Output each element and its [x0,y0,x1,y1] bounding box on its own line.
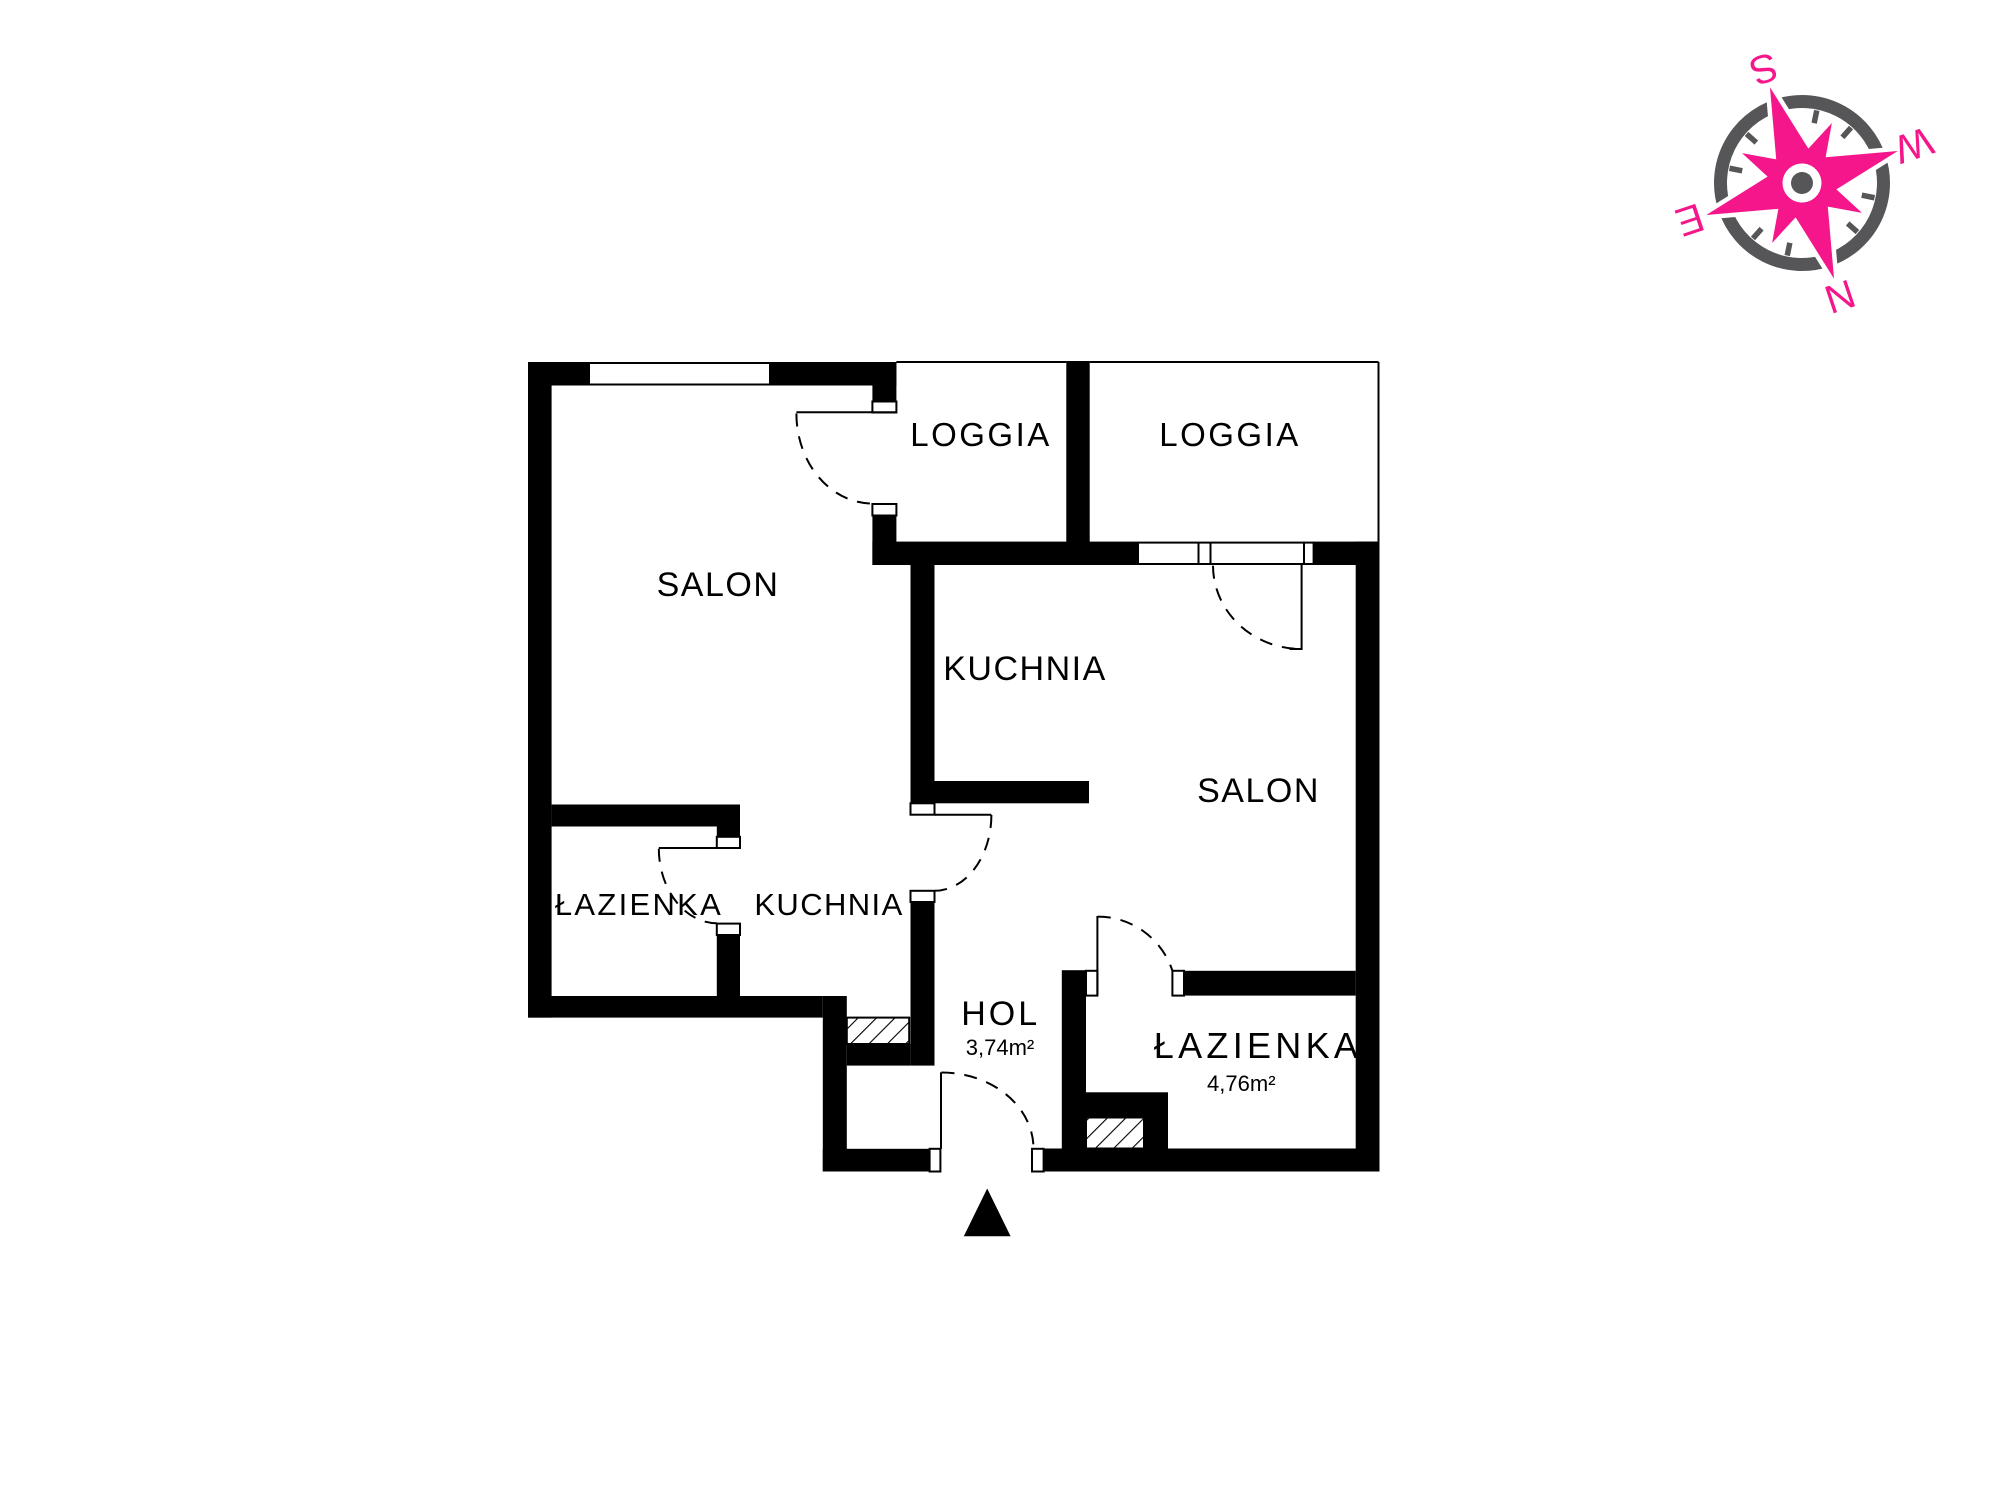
svg-text:KUCHNIA: KUCHNIA [943,650,1107,688]
svg-text:HOL: HOL [961,995,1040,1033]
svg-text:3,74m²: 3,74m² [966,1035,1034,1060]
svg-text:LOGGIA: LOGGIA [910,416,1052,453]
svg-text:LOGGIA: LOGGIA [1159,416,1301,453]
svg-text:KUCHNIA: KUCHNIA [754,887,903,922]
svg-text:4,76m²: 4,76m² [1207,1071,1275,1096]
svg-text:SALON: SALON [1197,772,1320,810]
svg-text:SALON: SALON [657,566,780,604]
svg-text:ŁAZIENKA: ŁAZIENKA [1154,1025,1362,1066]
svg-text:ŁAZIENKA: ŁAZIENKA [555,887,723,922]
